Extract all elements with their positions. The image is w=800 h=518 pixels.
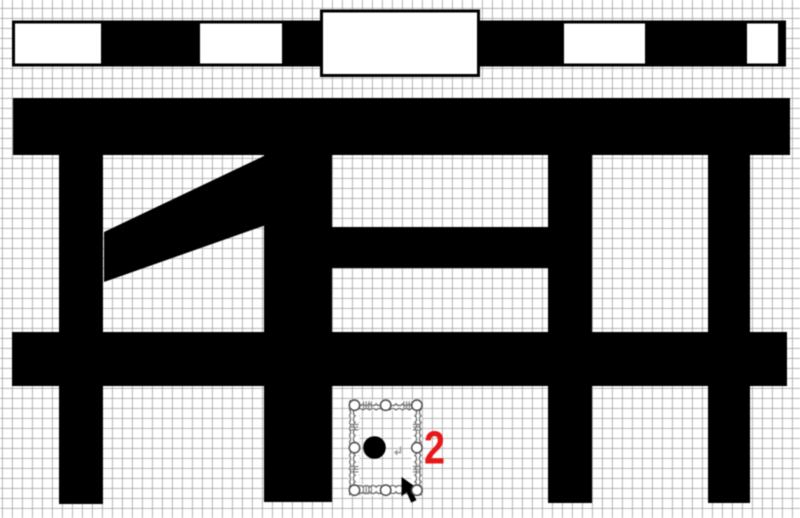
svg-text:2: 2 [424,422,445,474]
